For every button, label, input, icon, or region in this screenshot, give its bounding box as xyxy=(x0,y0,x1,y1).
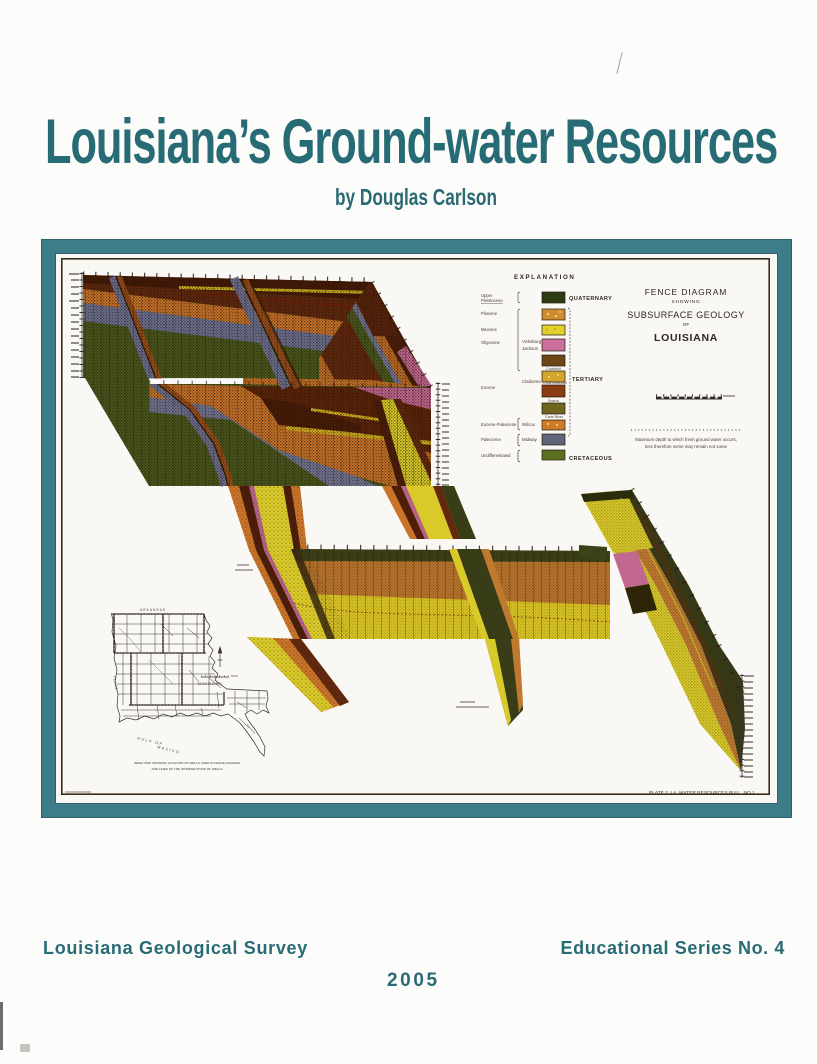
svg-text:FENCE DIAGRAM: FENCE DIAGRAM xyxy=(645,287,728,297)
svg-text:Undifferentiated: Undifferentiated xyxy=(481,453,511,458)
svg-text:Paleocene: Paleocene xyxy=(481,437,501,442)
svg-text:Cane River: Cane River xyxy=(545,415,564,419)
svg-text:PLATE 2. LA. WATER RESOURCES: PLATE 2. LA. WATER RESOURCES BULL. NO 1 xyxy=(649,790,755,795)
svg-text:QUATERNARY: QUATERNARY xyxy=(569,296,612,302)
svg-text:Cook Mountain: Cook Mountain xyxy=(543,381,567,385)
svg-text:Vicksburg: Vicksburg xyxy=(522,339,542,344)
svg-text:OF: OF xyxy=(683,322,690,328)
svg-text:Pleistocene: Pleistocene xyxy=(481,298,503,303)
svg-text:less therefore some may re: less therefore some may remain not some xyxy=(645,444,728,449)
svg-text:CRETACEOUS: CRETACEOUS xyxy=(569,456,612,462)
svg-text:TERTIARY: TERTIARY xyxy=(572,377,603,383)
svg-text:Oligocene: Oligocene xyxy=(481,340,501,345)
svg-text:Jackson: Jackson xyxy=(522,346,539,351)
svg-text:SHOWING: SHOWING xyxy=(671,299,700,305)
svg-text:LOUISIANA: LOUISIANA xyxy=(654,332,718,344)
svg-text:Miocene: Miocene xyxy=(481,327,497,332)
svg-text:Midway: Midway xyxy=(522,437,538,442)
svg-text:Claiborne: Claiborne xyxy=(522,379,541,384)
svg-text:Wilcox: Wilcox xyxy=(522,422,536,427)
svg-text:SUBSURFACE GEOLOGY: SUBSURFACE GEOLOGY xyxy=(627,310,745,320)
svg-text:ARKANSAS: ARKANSAS xyxy=(140,608,166,612)
svg-text:Eocene: Eocene xyxy=(481,385,496,390)
svg-text:INDEX MAP SHOWING LOCATION OF: INDEX MAP SHOWING LOCATION OF WELLS USED… xyxy=(134,761,240,765)
svg-text:Eocene-Paleocene: Eocene-Paleocene xyxy=(481,422,517,427)
svg-text:MISSISSIPPI: MISSISSIPPI xyxy=(198,682,222,686)
svg-text:Sparta: Sparta xyxy=(548,399,559,403)
svg-text:Cockfield: Cockfield xyxy=(546,367,561,371)
svg-text:AND LINES OF THE INTERSECTIONS: AND LINES OF THE INTERSECTIONS OF WELLS xyxy=(152,767,223,771)
svg-text:EXPLANATION: EXPLANATION xyxy=(514,274,576,281)
svg-text:Maximum depth to which fre: Maximum depth to which fresh ground wate… xyxy=(635,437,737,442)
svg-text:Pliocene: Pliocene xyxy=(481,311,498,316)
